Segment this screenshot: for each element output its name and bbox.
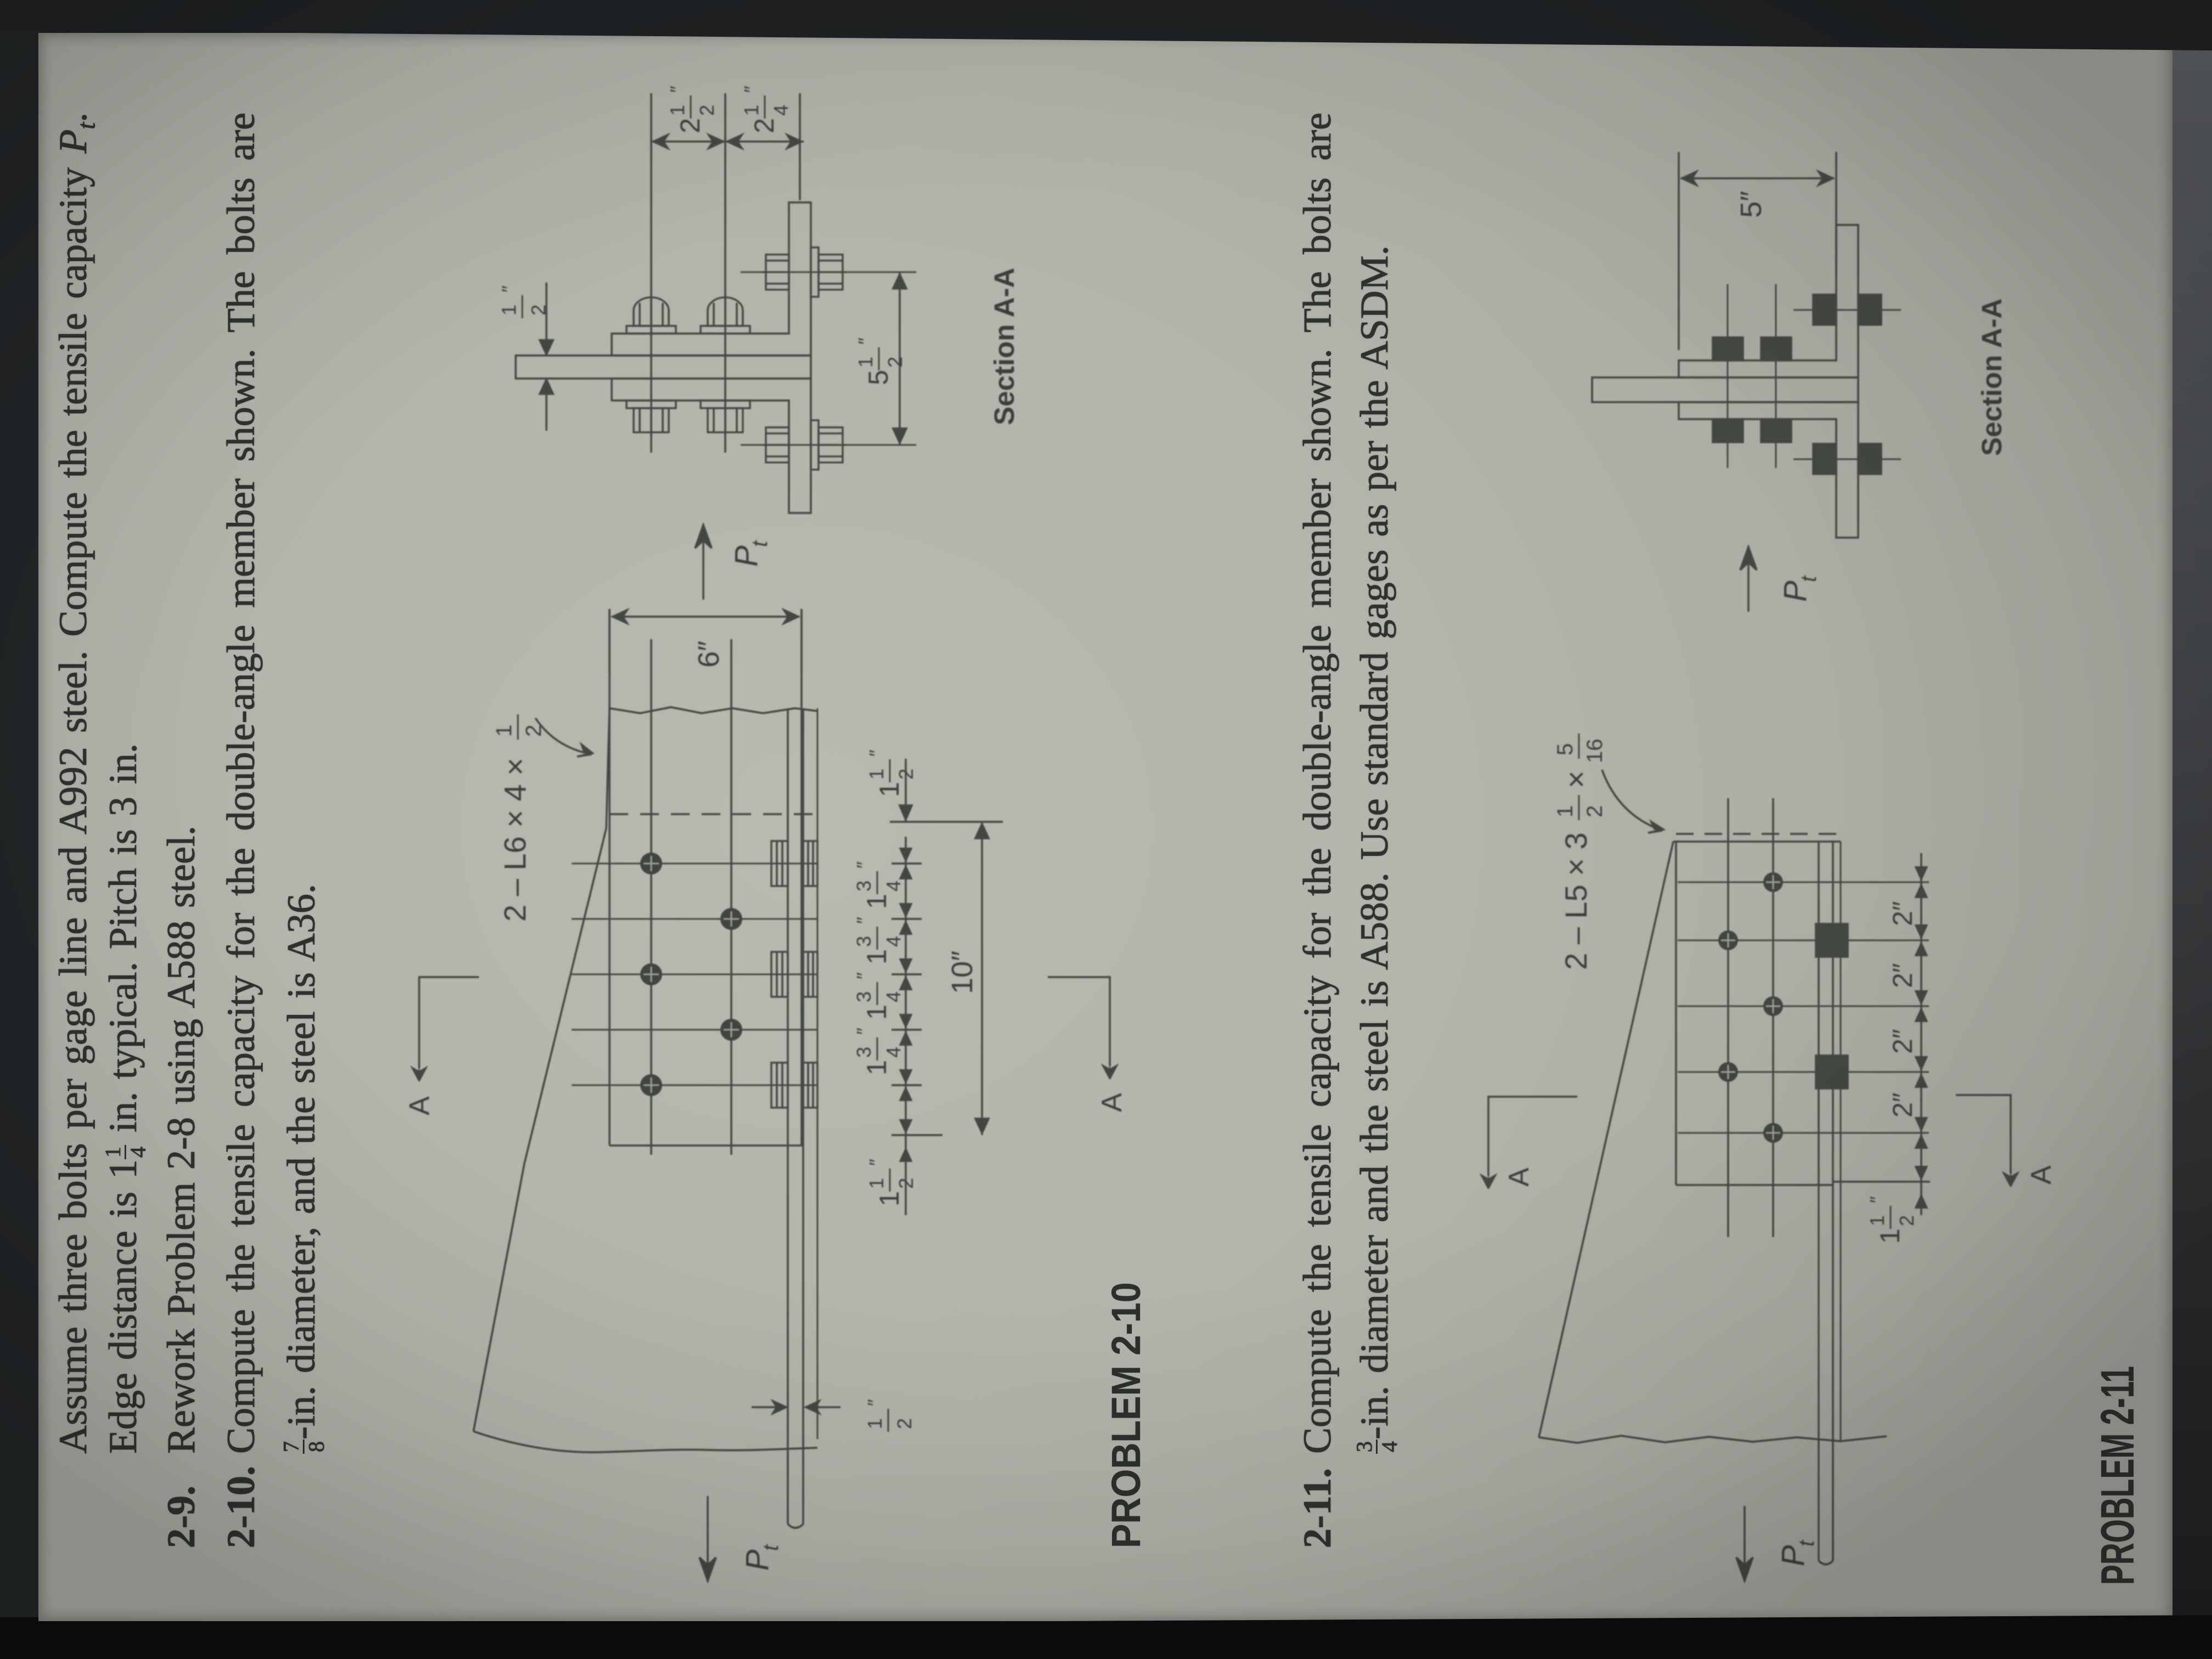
svg-text:″: ″: [864, 1399, 886, 1406]
svg-text:2 – L5 × 3: 2 – L5 × 3: [1559, 832, 1593, 970]
svg-text:4: 4: [882, 1047, 905, 1058]
svg-text:1: 1: [874, 782, 905, 797]
svg-text:t: t: [759, 1544, 783, 1551]
svg-text:2: 2: [895, 769, 917, 780]
svg-text:2: 2: [749, 118, 780, 133]
svg-text:2: 2: [893, 1418, 916, 1429]
svg-text:3: 3: [853, 881, 875, 891]
svg-text:3: 3: [853, 936, 875, 947]
svg-text:4: 4: [882, 991, 905, 1002]
svg-text:1: 1: [865, 1178, 888, 1189]
svg-text:″: ″: [853, 917, 875, 924]
svg-text:1: 1: [492, 725, 516, 737]
svg-text:2: 2: [895, 1178, 917, 1189]
svg-text:2: 2: [1583, 805, 1607, 817]
svg-text:″: ″: [865, 749, 888, 757]
svg-text:″: ″: [666, 86, 689, 93]
svg-text:2 – L6 × 4 ×: 2 – L6 × 4 ×: [498, 758, 532, 922]
svg-text:1: 1: [874, 1191, 905, 1206]
svg-text:6″: 6″: [692, 641, 725, 668]
svg-text:A: A: [1096, 1093, 1128, 1112]
svg-text:t: t: [1797, 575, 1821, 582]
svg-text:″: ″: [853, 861, 875, 868]
svg-text:2: 2: [696, 105, 718, 116]
svg-text:4: 4: [882, 936, 905, 947]
svg-text:A: A: [1503, 1167, 1535, 1187]
svg-text:16: 16: [1583, 739, 1607, 764]
svg-text:1: 1: [1875, 1228, 1905, 1244]
svg-text:1: 1: [854, 357, 877, 368]
svg-text:P: P: [1778, 580, 1813, 602]
svg-text:″: ″: [865, 1159, 888, 1166]
svg-text:1: 1: [861, 949, 892, 964]
svg-text:2: 2: [1895, 1215, 1918, 1226]
svg-text:″: ″: [740, 86, 763, 93]
svg-text:×: ×: [1559, 770, 1593, 788]
svg-text:t: t: [1795, 1539, 1819, 1547]
svg-text:1: 1: [864, 1418, 886, 1429]
svg-text:″: ″: [1866, 1196, 1888, 1203]
svg-text:3: 3: [853, 1047, 875, 1058]
svg-text:10″: 10″: [946, 951, 979, 994]
svg-text:2″: 2″: [1887, 963, 1918, 988]
svg-text:2″: 2″: [1887, 901, 1918, 926]
svg-text:1: 1: [861, 1005, 892, 1020]
svg-text:A: A: [2025, 1165, 2057, 1184]
svg-text:Section A-A: Section A-A: [989, 268, 1020, 425]
svg-text:4: 4: [882, 881, 905, 891]
svg-text:2″: 2″: [1887, 1029, 1918, 1054]
svg-text:1: 1: [861, 894, 892, 909]
svg-text:2″: 2″: [1887, 1092, 1918, 1118]
svg-text:5″: 5″: [1735, 191, 1768, 218]
svg-text:5: 5: [1553, 743, 1577, 755]
svg-text:P: P: [729, 545, 764, 567]
svg-text:1: 1: [666, 105, 689, 116]
svg-text:A: A: [404, 1096, 436, 1115]
svg-text:1: 1: [1866, 1215, 1888, 1226]
svg-text:2: 2: [884, 357, 906, 368]
svg-text:1: 1: [861, 1060, 892, 1075]
svg-text:″: ″: [853, 1028, 875, 1035]
svg-text:4: 4: [770, 105, 792, 116]
svg-text:1: 1: [740, 105, 763, 116]
svg-text:3: 3: [853, 991, 875, 1002]
svg-text:Section A-A: Section A-A: [1976, 298, 2007, 456]
svg-text:P: P: [1775, 1545, 1811, 1566]
svg-text:″: ″: [853, 972, 875, 979]
svg-text:2: 2: [527, 304, 550, 315]
svg-text:1: 1: [498, 304, 520, 315]
svg-text:5: 5: [863, 370, 894, 385]
svg-text:P: P: [740, 1549, 775, 1571]
svg-text:2: 2: [675, 118, 706, 133]
svg-text:1: 1: [1553, 805, 1577, 817]
svg-text:t: t: [748, 540, 772, 547]
svg-text:1: 1: [865, 769, 888, 780]
svg-text:″: ″: [498, 285, 520, 292]
svg-text:″: ″: [854, 337, 877, 345]
